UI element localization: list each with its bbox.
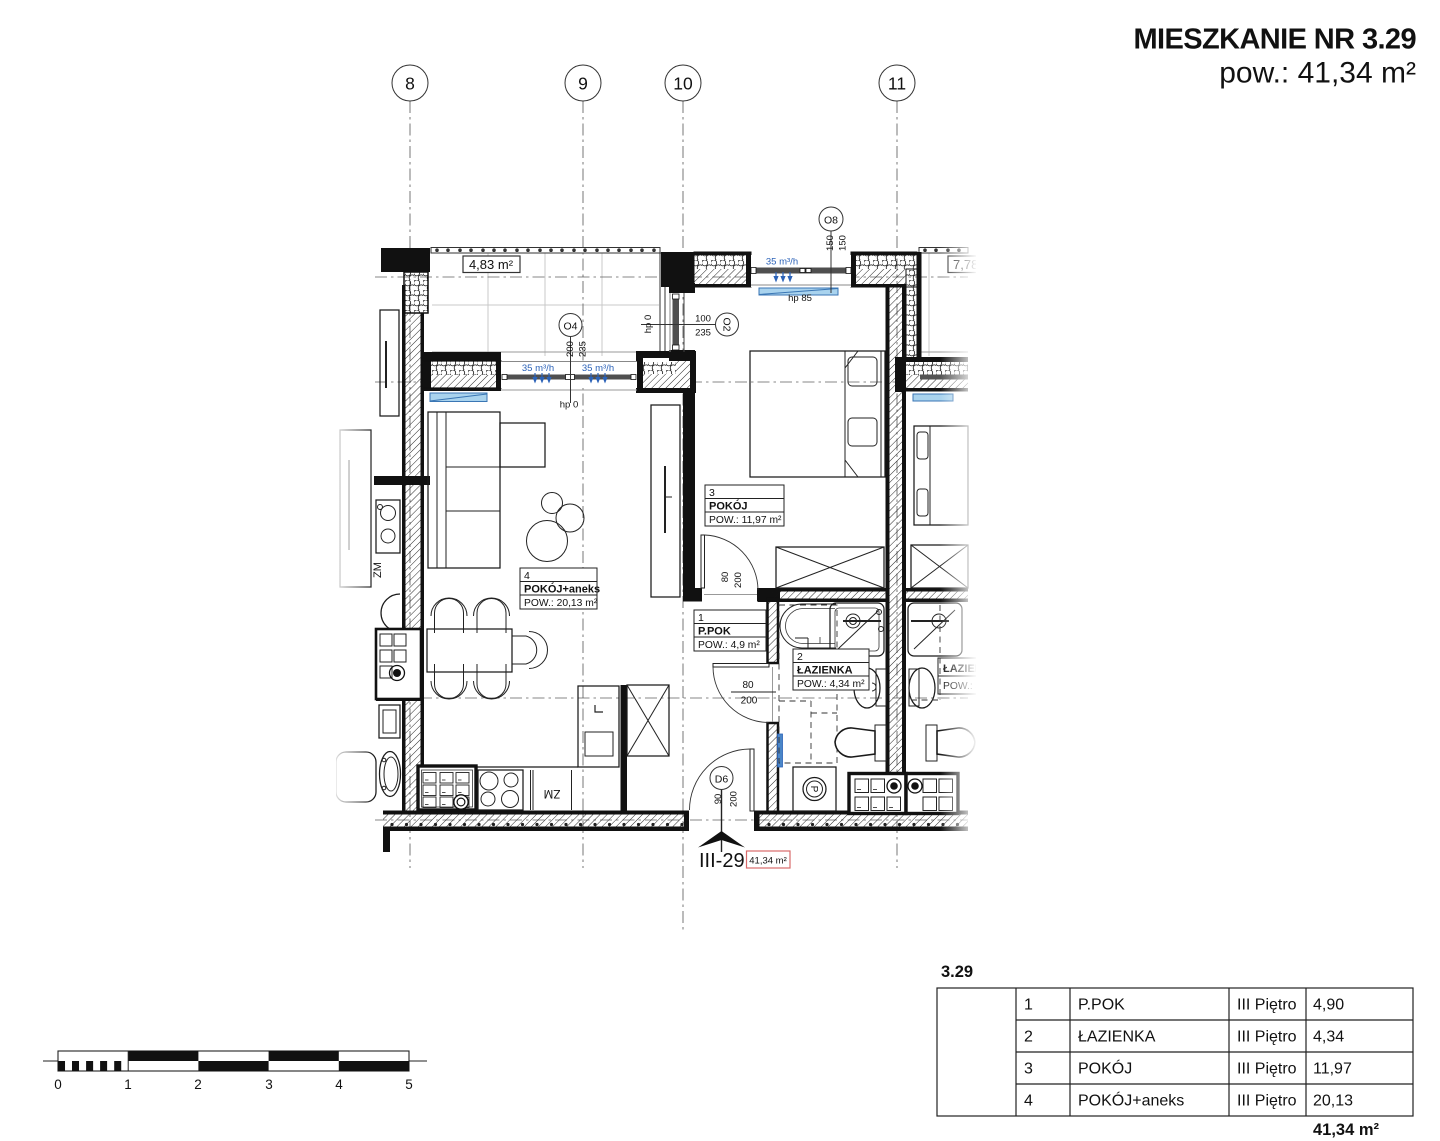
svg-text:POKÓJ+aneks: POKÓJ+aneks: [1078, 1091, 1184, 1110]
svg-text:MIESZKANIE NR 3.29: MIESZKANIE NR 3.29: [1134, 24, 1417, 56]
svg-text:8: 8: [405, 74, 415, 94]
svg-text:35 m³/h: 35 m³/h: [766, 257, 798, 268]
svg-text:hp 0: hp 0: [560, 400, 579, 411]
svg-text:III Piętro: III Piętro: [1237, 1029, 1297, 1046]
svg-text:POKÓJ: POKÓJ: [709, 500, 748, 513]
svg-text:POW.: 11,97 m²: POW.: 11,97 m²: [709, 515, 782, 526]
svg-text:ŁAZIENKA: ŁAZIENKA: [1078, 1029, 1156, 1046]
svg-text:3: 3: [1024, 1061, 1033, 1078]
svg-text:ŁAZIENKA: ŁAZIENKA: [797, 665, 853, 677]
svg-text:III Piętro: III Piętro: [1237, 997, 1297, 1014]
svg-text:1: 1: [698, 612, 704, 624]
svg-text:III-29: III-29: [699, 850, 745, 872]
svg-text:hp 85: hp 85: [788, 293, 812, 304]
svg-text:1: 1: [124, 1077, 132, 1092]
svg-text:0: 0: [54, 1077, 62, 1092]
svg-text:235: 235: [695, 328, 711, 339]
svg-text:P: P: [808, 786, 819, 793]
svg-text:200: 200: [565, 341, 576, 357]
svg-text:35 m³/h: 35 m³/h: [522, 363, 554, 374]
svg-text:ZM: ZM: [544, 787, 561, 799]
svg-text:41,34 m²: 41,34 m²: [1313, 1121, 1380, 1139]
svg-text:P.POK: P.POK: [698, 626, 731, 638]
svg-text:150: 150: [838, 235, 849, 251]
svg-text:200: 200: [741, 696, 758, 707]
svg-text:4: 4: [1024, 1093, 1033, 1110]
svg-text:3: 3: [709, 487, 715, 499]
svg-text:4,34: 4,34: [1313, 1029, 1344, 1046]
svg-text:41,34 m²: 41,34 m²: [749, 856, 787, 867]
svg-text:POKÓJ+aneks: POKÓJ+aneks: [524, 583, 600, 596]
svg-text:200: 200: [729, 791, 740, 807]
svg-text:3.29: 3.29: [941, 963, 973, 981]
svg-text:80: 80: [742, 680, 754, 691]
svg-text:4: 4: [335, 1077, 343, 1092]
svg-text:11,97: 11,97: [1313, 1061, 1352, 1078]
svg-text:P.POK: P.POK: [1078, 997, 1125, 1014]
svg-text:D6: D6: [715, 774, 729, 786]
svg-text:90: 90: [713, 794, 724, 805]
svg-text:O2: O2: [721, 317, 733, 331]
svg-text:2: 2: [1024, 1029, 1033, 1046]
svg-text:POKÓJ: POKÓJ: [1078, 1059, 1132, 1078]
svg-text:100: 100: [695, 314, 711, 325]
svg-text:80: 80: [720, 572, 731, 583]
svg-text:200: 200: [733, 572, 744, 588]
svg-text:pow.: 41,34 m²: pow.: 41,34 m²: [1219, 57, 1416, 90]
svg-text:POW.: 4,34 m²: POW.: 4,34 m²: [797, 679, 865, 690]
svg-text:POW.: 20,13 m²: POW.: 20,13 m²: [524, 598, 598, 609]
svg-text:O4: O4: [563, 321, 577, 333]
svg-text:POW.: 4,9 m²: POW.: 4,9 m²: [698, 640, 760, 651]
svg-text:1: 1: [1024, 997, 1033, 1014]
svg-text:10: 10: [673, 74, 693, 94]
svg-text:4: 4: [524, 570, 530, 582]
svg-text:5: 5: [405, 1077, 413, 1092]
svg-text:35 m³/h: 35 m³/h: [582, 363, 614, 374]
svg-text:235: 235: [578, 341, 589, 357]
svg-text:4,90: 4,90: [1313, 997, 1344, 1014]
svg-text:2: 2: [194, 1077, 202, 1092]
svg-text:11: 11: [888, 74, 906, 94]
svg-text:III Piętro: III Piętro: [1237, 1061, 1297, 1078]
svg-text:9: 9: [578, 74, 588, 94]
svg-text:20,13: 20,13: [1313, 1093, 1353, 1110]
svg-text:hp 0: hp 0: [643, 315, 654, 334]
svg-text:3: 3: [265, 1077, 273, 1092]
svg-text:III Piętro: III Piętro: [1237, 1093, 1297, 1110]
svg-text:2: 2: [797, 651, 803, 663]
svg-text:4,83 m²: 4,83 m²: [469, 257, 514, 272]
svg-text:O8: O8: [824, 215, 838, 227]
svg-text:150: 150: [825, 235, 836, 251]
